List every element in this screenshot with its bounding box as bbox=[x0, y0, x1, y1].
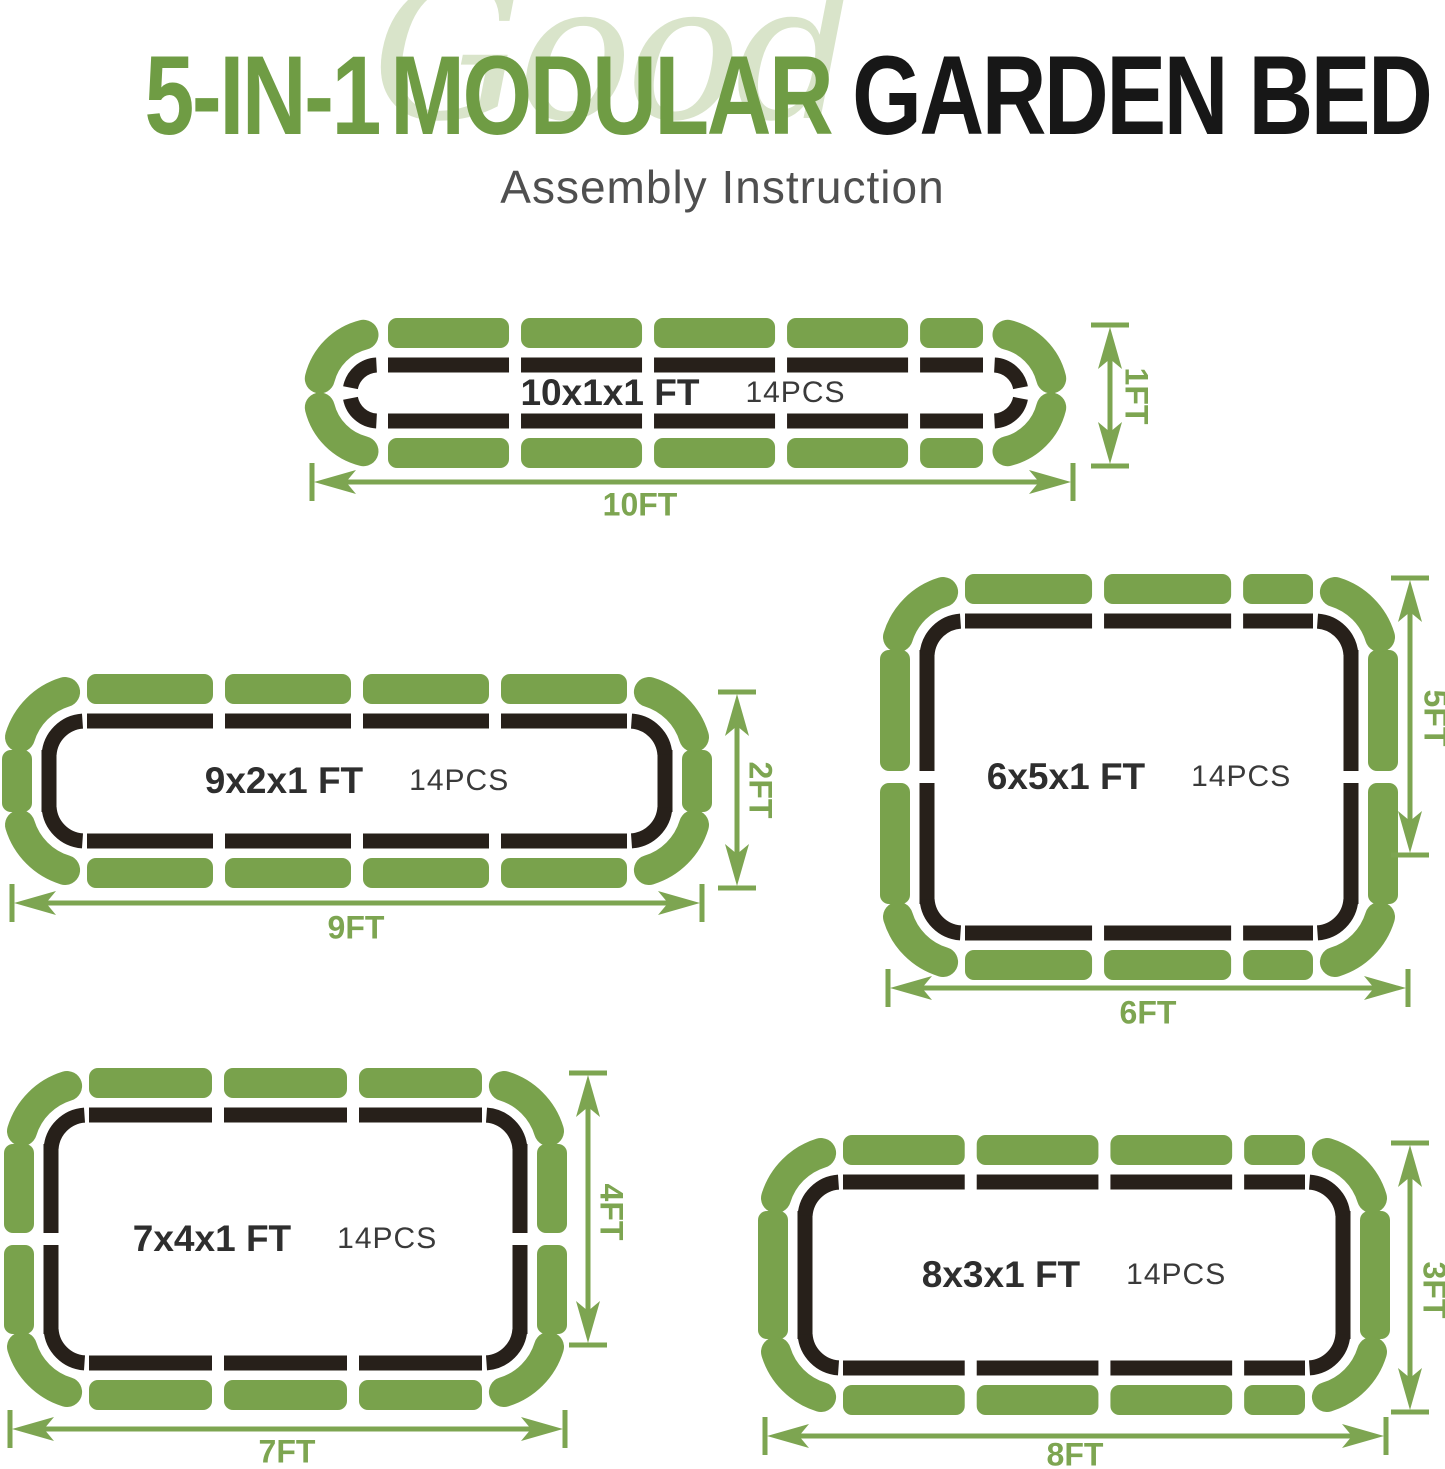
bed-7x4-height-label: 4FT bbox=[593, 1184, 630, 1241]
bed-6x5-width-label: 6FT bbox=[1120, 995, 1177, 1032]
bed-6x5-graphic bbox=[880, 574, 1398, 980]
bed-10x1-width-label: 10FT bbox=[603, 487, 678, 524]
bed-8x3-height-label: 3FT bbox=[1416, 1262, 1445, 1319]
bed-10x1-width-arrow bbox=[312, 463, 1073, 501]
bed-9x2-width-label: 9FT bbox=[328, 910, 385, 947]
bed-8x3-graphic bbox=[758, 1135, 1390, 1415]
bed-9x2-graphic bbox=[2, 674, 712, 888]
bed-10x1-height-label: 1FT bbox=[1118, 368, 1155, 425]
bed-10x1-graphic bbox=[320, 318, 1051, 468]
bed-8x3-width-label: 8FT bbox=[1047, 1437, 1104, 1469]
bed-9x2-height-label: 2FT bbox=[742, 762, 779, 819]
bed-7x4-graphic bbox=[4, 1068, 567, 1410]
garden-bed-diagram bbox=[0, 0, 1445, 1469]
bed-6x5-height-label: 5FT bbox=[1417, 690, 1445, 747]
page: Good 5-IN-1MODULARGARDEN BED Assembly In… bbox=[0, 0, 1445, 1469]
bed-7x4-width-label: 7FT bbox=[259, 1434, 316, 1469]
